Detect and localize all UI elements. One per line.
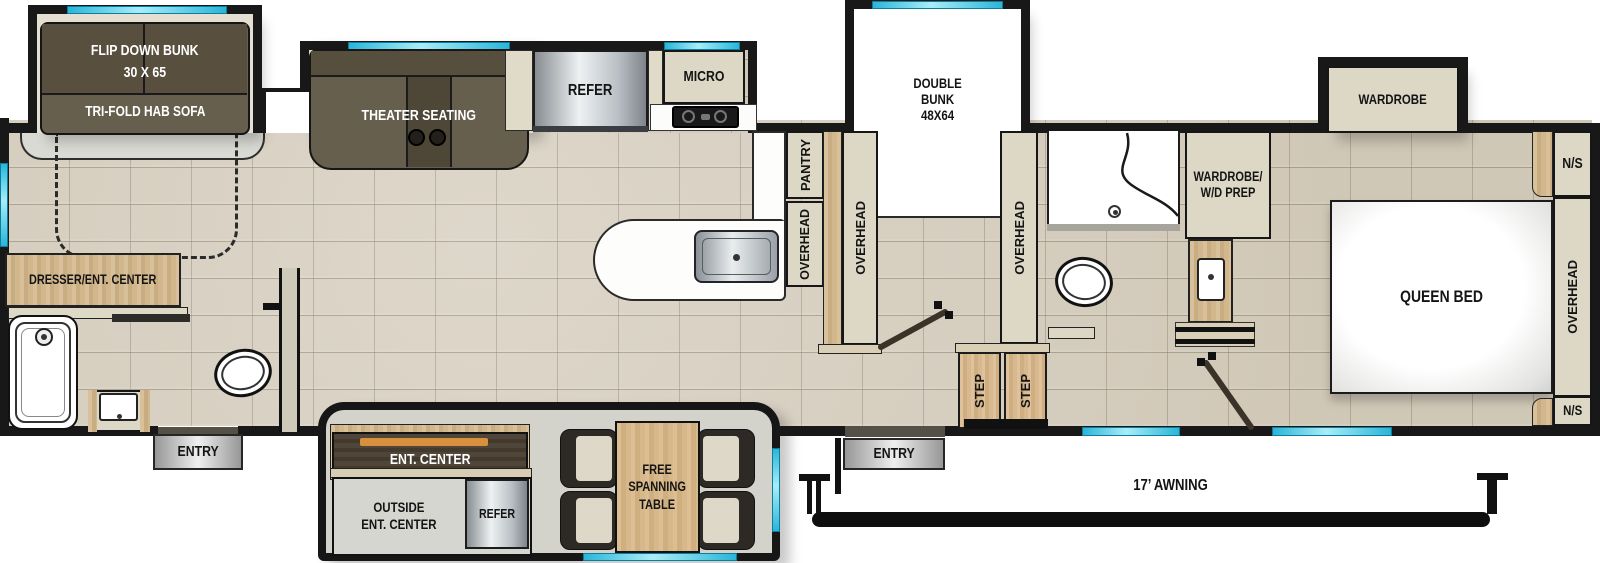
bunk-slide-wall-right <box>1021 0 1030 133</box>
step-1: STEP <box>958 352 1001 429</box>
entry-grab-rail <box>835 438 841 494</box>
refrigerator: REFER <box>533 50 648 131</box>
vanity-ledge-bar-2 <box>1175 339 1255 344</box>
awning-bracket-right-post <box>1487 480 1497 514</box>
dining-chair-left-bottom <box>560 491 618 550</box>
shower-curb <box>1047 224 1180 231</box>
pantry-cabinet: PANTRY <box>786 131 824 199</box>
bunk-slide-wall-left <box>845 0 854 133</box>
awning-label: 17’ AWNING <box>1095 477 1245 495</box>
dresser-tv-bar <box>112 314 190 322</box>
tri-fold-sofa-label: TRI-FOLD HAB SOFA <box>40 104 250 121</box>
window-bottom-hall <box>1082 427 1180 436</box>
window-rear-wall <box>0 163 8 247</box>
wardrobe-slide-wall-right <box>1459 57 1468 133</box>
double-bunk-label: DOUBLE BUNK 48X64 <box>854 68 1021 130</box>
wardrobe-slide-wall-left <box>1318 57 1327 133</box>
rear-bath-vanity <box>88 390 150 432</box>
pantry-label: PANTRY <box>798 139 813 191</box>
cooktop <box>672 106 739 128</box>
cabinet-filler-left-of-refer <box>505 50 533 131</box>
window-bottom-bedroom <box>1272 427 1392 436</box>
flip-down-bunk-size-label: 30 X 65 <box>40 64 250 82</box>
window-micro <box>664 42 740 50</box>
wall-right <box>1592 123 1600 436</box>
free-spanning-table: FREE SPANNING TABLE <box>615 421 700 553</box>
wall-recess-nook <box>266 92 311 133</box>
window-dining-slide-side <box>772 448 780 532</box>
nightstand-bottom: N/S <box>1553 396 1592 426</box>
awning-bar <box>812 512 1490 527</box>
burner-center <box>701 114 710 120</box>
bathtub <box>8 315 78 430</box>
awning-bracket-right-cap <box>1477 473 1508 480</box>
awning-bracket-left-post-1 <box>807 481 812 514</box>
wardrobe-wd-prep: WARDROBE/ W/D PREP <box>1185 131 1271 239</box>
theater-sofa-back <box>311 51 526 77</box>
outside-ent-center-label: OUTSIDE ENT. CENTER <box>336 494 462 538</box>
wardrobe-slide: WARDROBE <box>1327 66 1459 133</box>
flip-bunk-footprint-dashed <box>55 133 238 259</box>
cup-holder-right <box>429 129 446 146</box>
double-bunk-mattress <box>875 133 1000 218</box>
wardrobe-slide-wall-top <box>1318 57 1468 66</box>
mid-bath-faucet <box>1208 274 1214 280</box>
refrigerator-base <box>533 126 648 132</box>
flip-down-bunk-label: FLIP DOWN BUNK <box>40 42 250 60</box>
sofa-slide-wall-left <box>28 5 37 133</box>
island-sink <box>694 230 779 283</box>
island-sink-faucet <box>733 254 740 261</box>
burner-right <box>714 110 727 123</box>
vanity-ledge-bar-1 <box>1175 327 1255 332</box>
bunk-wall-wood-strip <box>823 131 842 352</box>
awning-bracket-left-cap <box>799 474 830 481</box>
rv-floorplan-canvas: WARDROBE FLIP DOWN BUNK 30 X 65 TRI-FOLD… <box>0 0 1600 563</box>
shower-drain <box>1108 205 1121 218</box>
nightstand-top: N/S <box>1553 131 1592 197</box>
dresser-ent-center: DRESSER/ENT. CENTER <box>5 253 181 307</box>
overhead-left-end-cap <box>818 344 882 354</box>
entry-step-right: ENTRY <box>843 438 945 470</box>
step-base-bar <box>964 419 1048 429</box>
dining-chair-right-top <box>697 429 755 488</box>
overhead-kitchen: OVERHEAD <box>786 201 824 287</box>
wardrobe-label: WARDROBE <box>1359 92 1427 107</box>
nightstand-top-wood <box>1532 131 1553 197</box>
queen-bed: QUEEN BED <box>1330 200 1553 394</box>
entry-step-left: ENTRY <box>153 434 243 470</box>
mid-bath-shelf <box>1048 327 1095 339</box>
step-2: STEP <box>1004 352 1047 429</box>
overhead-bunk-right: OVERHEAD <box>1000 131 1038 344</box>
theater-seating-label: THEATER SEATING <box>309 107 529 125</box>
outside-refrigerator: REFER <box>465 479 529 549</box>
ent-center-label: ENT. CENTER <box>332 450 528 470</box>
burner-left <box>682 110 695 123</box>
cup-holder-left <box>408 129 425 146</box>
nightstand-bottom-wood <box>1532 398 1553 426</box>
window-sofa-slide <box>67 6 227 14</box>
ent-center-accent <box>360 438 488 446</box>
dining-chair-left-top <box>560 429 618 488</box>
overhead-bunk-left: OVERHEAD <box>842 131 878 345</box>
rear-bath-faucet <box>117 414 122 419</box>
rear-bath-sliding-door <box>279 268 300 432</box>
tub-faucet <box>35 328 53 346</box>
entry-threshold-right <box>845 426 945 437</box>
window-bunk-slide <box>872 1 1003 9</box>
overhead-bedroom: OVERHEAD <box>1553 197 1592 397</box>
window-dining-slide-bottom <box>583 553 737 561</box>
awning-bracket-left-post-2 <box>816 481 821 514</box>
microwave: MICRO <box>663 50 745 104</box>
dining-chair-right-bottom <box>697 491 755 550</box>
sliding-door-handle <box>263 303 280 310</box>
